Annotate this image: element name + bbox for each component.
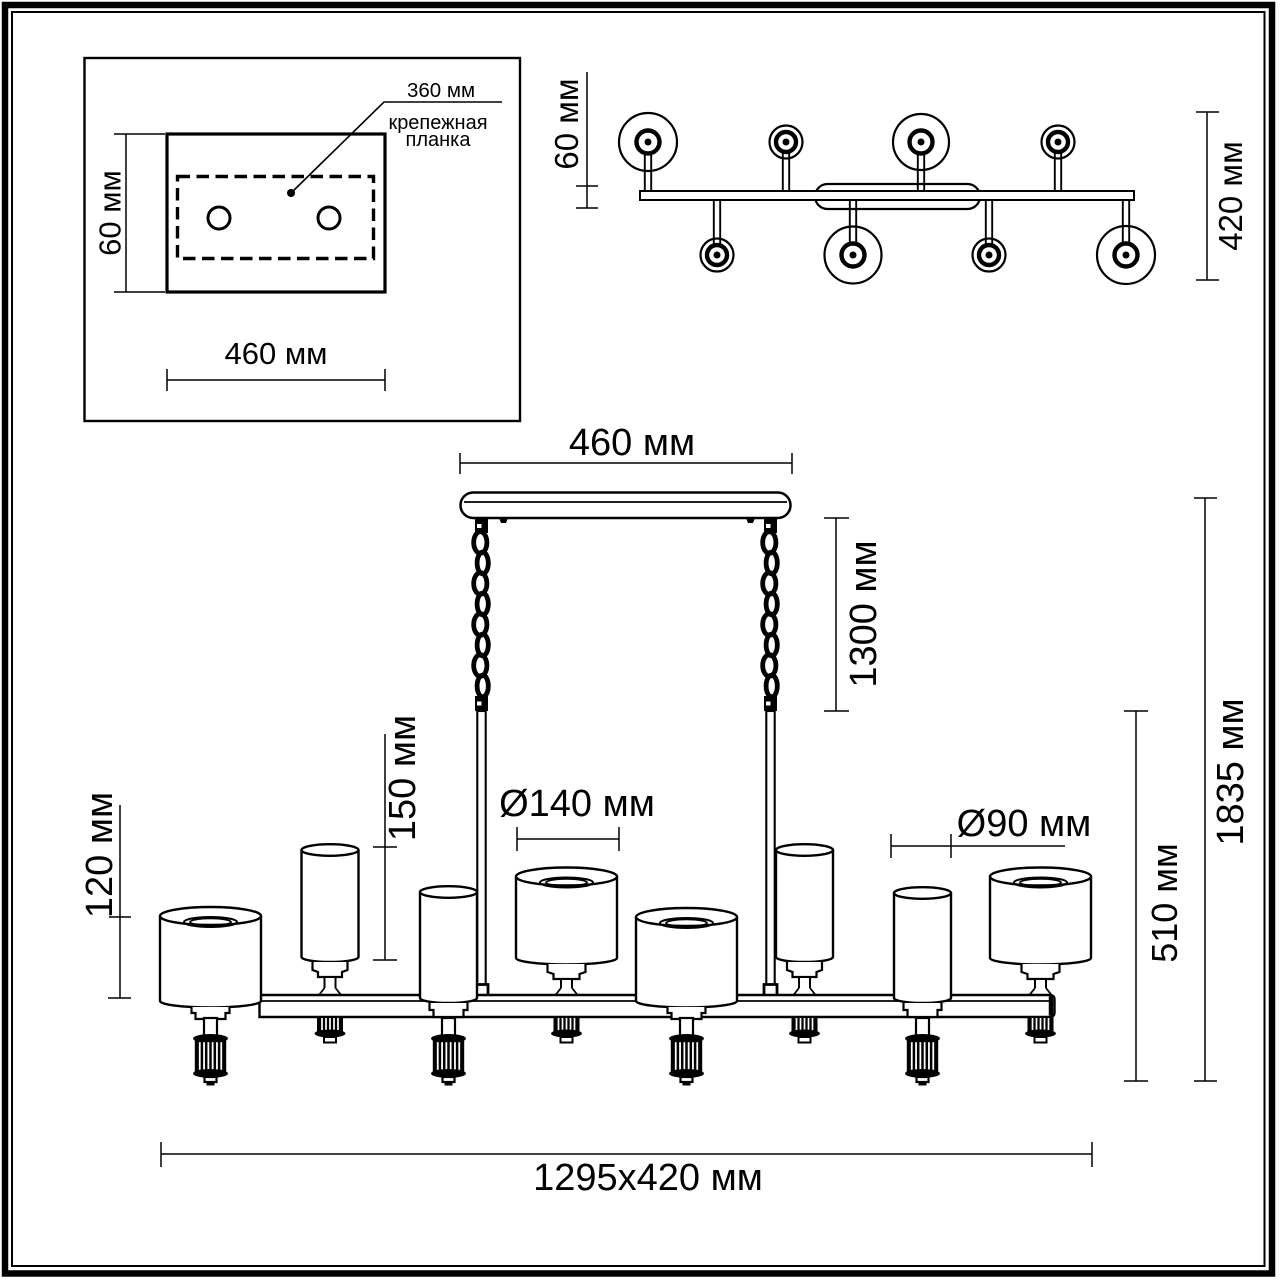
svg-text:1835 мм: 1835 мм (1210, 698, 1252, 845)
svg-text:510 мм: 510 мм (1144, 843, 1185, 963)
svg-text:150 мм: 150 мм (382, 715, 424, 841)
svg-text:60 мм: 60 мм (93, 170, 128, 256)
svg-text:60 мм: 60 мм (548, 78, 585, 169)
svg-text:планка: планка (406, 129, 472, 151)
svg-text:Ø140 мм: Ø140 мм (499, 783, 655, 825)
svg-text:1300 мм: 1300 мм (843, 540, 885, 687)
svg-text:420 мм: 420 мм (1212, 141, 1249, 251)
svg-text:460 мм: 460 мм (225, 336, 328, 371)
svg-text:Ø90 мм: Ø90 мм (957, 803, 1092, 845)
svg-text:360 мм: 360 мм (407, 79, 475, 102)
svg-text:460 мм: 460 мм (569, 422, 695, 464)
svg-text:120 мм: 120 мм (79, 792, 121, 918)
svg-text:1295x420 мм: 1295x420 мм (533, 1157, 763, 1199)
